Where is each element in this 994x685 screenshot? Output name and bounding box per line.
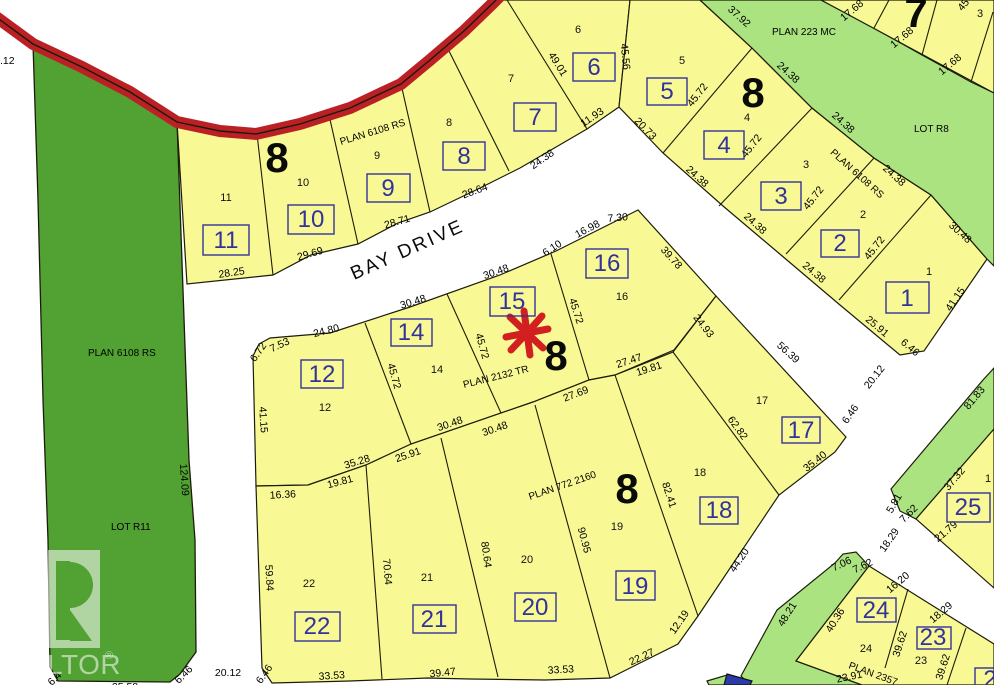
svg-text:7.30: 7.30 [607, 211, 629, 225]
svg-text:19: 19 [611, 521, 623, 533]
svg-text:12: 12 [319, 402, 331, 414]
svg-text:5: 5 [679, 55, 685, 67]
svg-text:124.09: 124.09 [177, 463, 191, 496]
svg-text:7: 7 [528, 104, 541, 131]
svg-text:14: 14 [398, 319, 425, 346]
svg-text:23: 23 [915, 655, 927, 667]
svg-text:12: 12 [309, 361, 336, 388]
svg-text:8: 8 [544, 332, 567, 379]
svg-text:23: 23 [920, 624, 947, 651]
svg-text:16: 16 [594, 250, 621, 277]
svg-text:LOT R8: LOT R8 [914, 124, 949, 135]
svg-text:25: 25 [955, 494, 982, 521]
svg-text:33.53: 33.53 [547, 663, 574, 676]
svg-text:21: 21 [421, 606, 448, 633]
svg-text:41.15: 41.15 [256, 406, 270, 433]
svg-text:8: 8 [457, 143, 470, 170]
svg-text:1: 1 [900, 285, 913, 312]
svg-text:2: 2 [983, 666, 994, 685]
svg-text:21: 21 [421, 572, 433, 584]
svg-text:25.58: 25.58 [112, 681, 138, 685]
svg-text:20: 20 [521, 554, 533, 566]
svg-text:PLAN 223 MC: PLAN 223 MC [772, 27, 836, 38]
svg-text:®: ® [105, 650, 113, 662]
svg-text:11: 11 [220, 192, 231, 204]
svg-text:4: 4 [717, 132, 730, 159]
svg-text:3: 3 [977, 8, 983, 20]
svg-text:17: 17 [788, 417, 815, 444]
svg-text:1: 1 [926, 266, 932, 278]
svg-text:24: 24 [860, 643, 872, 655]
svg-text:19: 19 [622, 573, 649, 600]
svg-text:5: 5 [660, 78, 673, 105]
svg-text:2: 2 [860, 209, 866, 221]
svg-text:20.12: 20.12 [215, 667, 241, 679]
svg-text:3: 3 [774, 183, 787, 210]
svg-text:LOT R11: LOT R11 [111, 522, 151, 533]
svg-text:2: 2 [833, 230, 846, 257]
svg-text:3: 3 [803, 159, 809, 171]
svg-text:16.36: 16.36 [269, 488, 296, 501]
svg-text:15: 15 [499, 288, 526, 315]
svg-text:16: 16 [616, 291, 628, 303]
svg-text:22: 22 [303, 578, 315, 590]
svg-text:14: 14 [431, 364, 443, 376]
svg-text:6: 6 [587, 54, 600, 81]
svg-text:9: 9 [374, 150, 380, 162]
svg-text:4: 4 [744, 112, 750, 124]
svg-text:8: 8 [615, 465, 638, 512]
svg-text:22: 22 [304, 613, 331, 640]
svg-text:18: 18 [706, 497, 733, 524]
svg-text:9: 9 [381, 175, 394, 202]
svg-text:10: 10 [298, 206, 325, 233]
svg-text:24: 24 [863, 597, 890, 624]
svg-text:6: 6 [575, 24, 581, 36]
svg-text:33.53: 33.53 [318, 669, 345, 683]
svg-text:70.64: 70.64 [380, 558, 394, 585]
svg-text:7: 7 [508, 73, 514, 85]
svg-text:10: 10 [297, 177, 309, 189]
svg-text:8: 8 [741, 69, 764, 116]
svg-text:.12: .12 [0, 55, 15, 67]
svg-text:8: 8 [265, 134, 288, 181]
svg-text:1: 1 [985, 473, 991, 485]
svg-text:11: 11 [214, 227, 239, 254]
svg-text:17: 17 [756, 395, 768, 407]
svg-text:18: 18 [694, 467, 706, 479]
svg-text:PLAN 6108 RS: PLAN 6108 RS [88, 348, 156, 359]
svg-text:59.84: 59.84 [262, 564, 275, 591]
svg-text:20: 20 [522, 594, 549, 621]
svg-text:8: 8 [446, 117, 452, 129]
